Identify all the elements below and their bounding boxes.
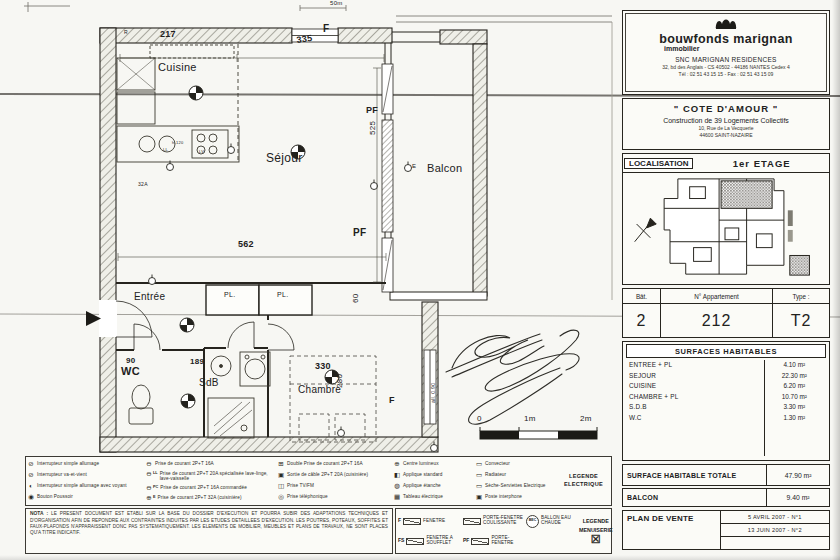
surface-row-value: 3.30 m² xyxy=(764,402,825,413)
surface-row-label: CHAMBRE + PL xyxy=(627,392,764,403)
surface-row: S.D.B3.30 m² xyxy=(627,402,825,413)
legend-elec-item: ⊖PCPrise de courant 2P+T 16A commandée xyxy=(145,485,277,492)
revision-row: 5 AVRIL 2007 - N°1 xyxy=(721,511,829,524)
legend-elec-label: Prise TV/FM xyxy=(287,483,314,488)
closets xyxy=(206,285,312,315)
legend-elec-item: ⊖LLPrise de courant 2P+T 20A spécialisée… xyxy=(145,471,277,481)
scan-edge-bottom xyxy=(0,555,840,560)
applique-etanche-icon: ◍ xyxy=(393,483,401,490)
legend-elec-item: ▣Poste interphone xyxy=(475,494,557,501)
surface-row-label: W.C xyxy=(627,413,764,424)
legend-menuiserie-label: FENETRE A SOUFFLET xyxy=(426,536,462,546)
legend-menuiserie-item: FFENETRE xyxy=(398,511,462,531)
window-symbol-icon xyxy=(471,538,489,545)
project-address-line2: 44600 SAINT-NAZAIRE xyxy=(623,132,829,138)
menuiserie-symbol-tag: F xyxy=(398,518,401,523)
legend-elec-item: ▭Sèche-Serviettes Electrique xyxy=(475,483,557,490)
bathroom-fixtures xyxy=(129,352,270,438)
legend-elec-item: ⊕Centre lumineux xyxy=(393,461,475,468)
plan-de-vente-label: PLAN DE VENTE xyxy=(623,511,720,549)
project-box: " COTE D'AMOUR " Construction de 39 Loge… xyxy=(622,98,830,150)
building-label: Bât. xyxy=(623,289,661,304)
nota-label: NOTA : xyxy=(30,511,48,516)
localisation-box: LOCALISATION 1er ETAGE xyxy=(622,153,830,285)
nota-box: NOTA : LE PRESENT DOCUMENT EST ETABLI SU… xyxy=(25,508,393,554)
legend-elec-label: Prise de courant 2P+T 16A xyxy=(155,461,214,466)
entrance-arrow-icon xyxy=(86,311,101,326)
seche-serviettes-icon: ▭ xyxy=(475,483,483,490)
balcony-box: BALCON 9.40 m² xyxy=(622,488,830,507)
window-symbol-icon xyxy=(403,518,421,525)
surface-row-value: 1.30 m² xyxy=(764,413,825,424)
surface-row: CUISINE6.20 m² xyxy=(627,381,825,392)
title-block: bouwfonds marignan immobilier SNC MARIGN… xyxy=(622,10,832,555)
apartment-number: 212 xyxy=(661,304,773,337)
legend-elec-label: Centre lumineux xyxy=(403,461,439,466)
menuiserie-symbol-tag: PF xyxy=(463,538,469,543)
legend-elec-item: ◍Applique étanche xyxy=(393,483,475,490)
north-arrow-icon xyxy=(635,218,657,242)
legend-elec-label: Prise téléphonique xyxy=(287,494,328,499)
legend-elec-item: ⊞Double Prise de courant 2P+T 16A xyxy=(277,461,393,468)
legend-elec-item: ▭Radiateur xyxy=(475,472,557,479)
legend-elec-label: Applique standard xyxy=(403,472,443,477)
bedroom-furniture xyxy=(290,356,376,442)
legend-elec-label: Convecteur xyxy=(485,461,510,466)
plan-de-vente-box: PLAN DE VENTE 5 AVRIL 2007 - N°113 JUIN … xyxy=(622,510,830,550)
legend-elec-column: ⊕Centre lumineux◧Applique standard◍Appli… xyxy=(393,459,475,503)
unit-box: Bât. N° Appartement Type : 2 212 T2 xyxy=(622,288,830,338)
poste-interphone-icon: ▣ xyxy=(475,494,483,501)
menuiserie-symbol-tag: FS xyxy=(398,538,404,543)
sortie-cable-icon: ▣ xyxy=(277,472,285,479)
legend-elec-label: Prise de courant 2P+T 20A spécialisée la… xyxy=(160,471,277,481)
legend-elec-item: ◎Prise téléphonique xyxy=(277,494,393,501)
legend-menuiserie-item: PORTE-FENETRE COULISSANTE xyxy=(463,511,525,531)
surfaces-title: SURFACES HABITABLES xyxy=(626,344,826,358)
revision-row: 13 JUIN 2007 - N°2 xyxy=(721,524,829,537)
crossed-box-icon: ☒ xyxy=(591,534,601,545)
convecteur-icon: ▭ xyxy=(475,461,483,468)
revision-row xyxy=(721,537,829,549)
prise-16a-commandee-icon: ⊖ xyxy=(145,485,153,492)
window-symbol-icon xyxy=(463,518,481,525)
legend-elec-label: Interrupteur va-et-vient xyxy=(37,472,87,477)
scale-bar xyxy=(480,427,597,439)
legend-elec-label: Applique étanche xyxy=(403,483,441,488)
legend-elec-item: ⊘Interrupteur simple allumage xyxy=(27,461,145,468)
interrupteur-va-et-vient-icon: ⊘ xyxy=(27,472,35,479)
legend-elec-label: Sèche-Serviettes Electrique xyxy=(485,483,546,488)
project-description: Construction de 39 Logements Collectifs xyxy=(623,117,829,124)
legend-elec-label: Tableau électrique xyxy=(403,494,443,499)
legend-elec-item: ⊖Prise de courant 2P+T 16A xyxy=(145,461,277,468)
legend-menuiserie-item: FSFENETRE A SOUFFLET xyxy=(398,531,462,551)
key-plan xyxy=(623,173,827,281)
legend-elec-column: ⊞Double Prise de courant 2P+T 16A▣Sortie… xyxy=(277,459,393,503)
legend-elec-label: Double Prise de courant 2P+T 16A xyxy=(287,461,363,466)
bouton-poussoir-icon: ◉ xyxy=(27,494,35,501)
company-name: SNC MARIGNAN RESIDENCES xyxy=(626,56,826,63)
legend-elec-label: Prise de courant 2P+T 16A commandée xyxy=(160,485,247,490)
surface-row: ENTREE + PL4.10 m² xyxy=(627,360,825,371)
balcony xyxy=(382,32,487,300)
dimension-lines xyxy=(118,54,386,282)
surface-row-value: 4.10 m² xyxy=(764,360,825,371)
legend-menuiserie-label: PORTE-FENETRE COULISSANTE xyxy=(483,516,525,526)
surface-row-label: ENTREE + PL xyxy=(627,360,764,371)
radiateur-icon: ▭ xyxy=(475,472,483,479)
prise-32a-icon: ⊕ xyxy=(145,495,153,502)
company-phone: Tél : 02 51 43 15 15 - Fax : 02 51 43 15… xyxy=(626,71,826,77)
legend-menuiserie-label: PORTE-FENETRE xyxy=(491,536,525,546)
scan-edge-right xyxy=(832,0,840,560)
surface-row-label: S.D.B xyxy=(627,402,764,413)
window-openings xyxy=(292,29,436,424)
legend-elec-label: Sortie de câble 2P+T 20A (cuisinière) xyxy=(287,472,368,477)
legend-elec-item: ◐Interrupteur simple allumage avec voyan… xyxy=(27,483,145,490)
legend-menuiserie-item: PFPORTE-FENETRE xyxy=(463,531,525,551)
legend-elec-label: Interrupteur simple allumage avec voyant xyxy=(37,483,127,488)
prise-telephonique-icon: ◎ xyxy=(277,494,285,501)
surface-row-label: SEJOUR xyxy=(627,371,764,382)
legend-menuiserie-title-text: LEGENDE MENUISERIE xyxy=(579,517,613,533)
surface-row-value: 6.20 m² xyxy=(764,381,825,392)
surface-row-value: 22.30 m² xyxy=(764,371,825,382)
surface-row-value: 10.70 m² xyxy=(764,392,825,403)
floor-label: 1er ETAGE xyxy=(694,158,829,169)
brand-name: bouwfonds marignan xyxy=(626,32,826,46)
surface-row: SEJOUR22.30 m² xyxy=(627,371,825,382)
total-surface-box: SURFACE HABITABLE TOTALE 47.90 m² xyxy=(622,464,830,486)
legend-symbol-tag: E xyxy=(153,495,156,499)
legend-menuiserie: FFENETREPORTE-FENETRE COULISSANTEBECBALL… xyxy=(395,508,612,554)
surfaces-box: SURFACES HABITABLES ENTREE + PL4.10 m²SE… xyxy=(622,341,830,461)
brand-subtitle: immobilier xyxy=(664,45,826,52)
legend-elec-label: Interrupteur simple allumage xyxy=(37,461,99,466)
revision-rows: 5 AVRIL 2007 - N°113 JUIN 2007 - N°2 xyxy=(720,511,829,549)
surfaces-divider xyxy=(764,360,765,456)
legend-electrique-title: LEGENDE ELECTRIQUE xyxy=(557,459,610,503)
tableau-electrique-icon: ▦ xyxy=(393,494,401,501)
balcony-value: 9.40 m² xyxy=(766,489,829,506)
surfaces-rows: ENTREE + PL4.10 m²SEJOUR22.30 m²CUISINE6… xyxy=(627,360,825,456)
legend-menuiserie-title: LEGENDE MENUISERIE ☒ xyxy=(579,511,613,551)
interrupteur-voyant-icon: ◐ xyxy=(27,483,35,490)
legend-elec-label: Bouton Poussoir xyxy=(37,494,73,499)
localisation-label: LOCALISATION xyxy=(624,158,693,169)
prise-tv-fm-icon: ◫ xyxy=(277,483,285,490)
legend-elec-column: ▭Convecteur▭Radiateur▭Sèche-Serviettes E… xyxy=(475,459,557,503)
signatures xyxy=(446,330,579,424)
company-address: 32, bd des Anglais - CS 40502 - 44186 NA… xyxy=(626,64,826,70)
surface-row-label: CUISINE xyxy=(627,381,764,392)
legend-elec-label: Radiateur xyxy=(485,472,506,477)
nota-text: LE PRESENT DOCUMENT EST ETABLI SUR LA BA… xyxy=(30,511,388,535)
apartment-type: T2 xyxy=(773,304,829,337)
legend-elec-item: ▣Sortie de câble 2P+T 20A (cuisinière) xyxy=(277,472,393,479)
legend-elec-label: Prise de courant 2P+T 32A (cuisinière) xyxy=(158,495,242,500)
legend-elec-item: ◫Prise TV/FM xyxy=(277,483,393,490)
legend-elec-column: ⊖Prise de courant 2P+T 16A⊖LLPrise de co… xyxy=(145,459,277,503)
prise-16a-icon: ⊖ xyxy=(145,461,153,468)
apartment-label: N° Appartement xyxy=(661,289,773,304)
legend-elec-item: ◧Applique standard xyxy=(393,472,475,479)
water-heater-icon: BEC xyxy=(526,515,539,528)
project-name: " COTE D'AMOUR " xyxy=(623,103,829,114)
legend-symbol-tag: LL xyxy=(153,471,158,475)
legend-menuiserie-label: BALLON EAU CHAUDE xyxy=(541,516,578,526)
legend-menuiserie-label: FENETRE xyxy=(423,519,445,524)
brand-logo-icon xyxy=(713,17,739,30)
total-surface-value: 47.90 m² xyxy=(766,465,829,485)
project-address-line1: 10, Rue de La Vecquerie xyxy=(623,125,829,131)
legend-elec-item: ▭Convecteur xyxy=(475,461,557,468)
legend-electrique: ⊘Interrupteur simple allumage⊘Interrupte… xyxy=(25,456,612,506)
legend-menuiserie-item: BECBALLON EAU CHAUDE xyxy=(526,511,578,531)
legend-symbol-tag: PC xyxy=(153,485,158,489)
type-label: Type : xyxy=(773,289,829,304)
window-symbol-icon xyxy=(406,538,424,545)
applique-standard-icon: ◧ xyxy=(393,472,401,479)
balcony-label: BALCON xyxy=(623,489,766,506)
total-surface-label: SURFACE HABITABLE TOTALE xyxy=(623,465,766,485)
legend-elec-item: ▦Tableau électrique xyxy=(393,494,475,501)
legend-elec-item: ⊘Interrupteur va-et-vient xyxy=(27,472,145,479)
legend-elec-column: ⊘Interrupteur simple allumage⊘Interrupte… xyxy=(27,459,145,503)
legend-elec-cols: ⊘Interrupteur simple allumage⊘Interrupte… xyxy=(27,459,557,503)
legend-elec-label: Poste interphone xyxy=(485,494,522,499)
logo-box: bouwfonds marignan immobilier SNC MARIGN… xyxy=(622,10,830,95)
double-prise-16a-icon: ⊞ xyxy=(277,461,285,468)
prise-20a-icon: ⊖ xyxy=(145,471,153,478)
legend-elec-item: ⊕EPrise de courant 2P+T 32A (cuisinière) xyxy=(145,495,277,502)
centre-lumineux-icon: ⊕ xyxy=(393,461,401,468)
legend-elec-item: ◉Bouton Poussoir xyxy=(27,494,145,501)
kitchen-fixtures xyxy=(117,44,239,162)
interrupteur-simple-icon: ⊘ xyxy=(27,461,35,468)
surface-row: CHAMBRE + PL10.70 m² xyxy=(627,392,825,403)
building-number: 2 xyxy=(623,304,661,337)
surface-row: W.C1.30 m² xyxy=(627,413,825,424)
